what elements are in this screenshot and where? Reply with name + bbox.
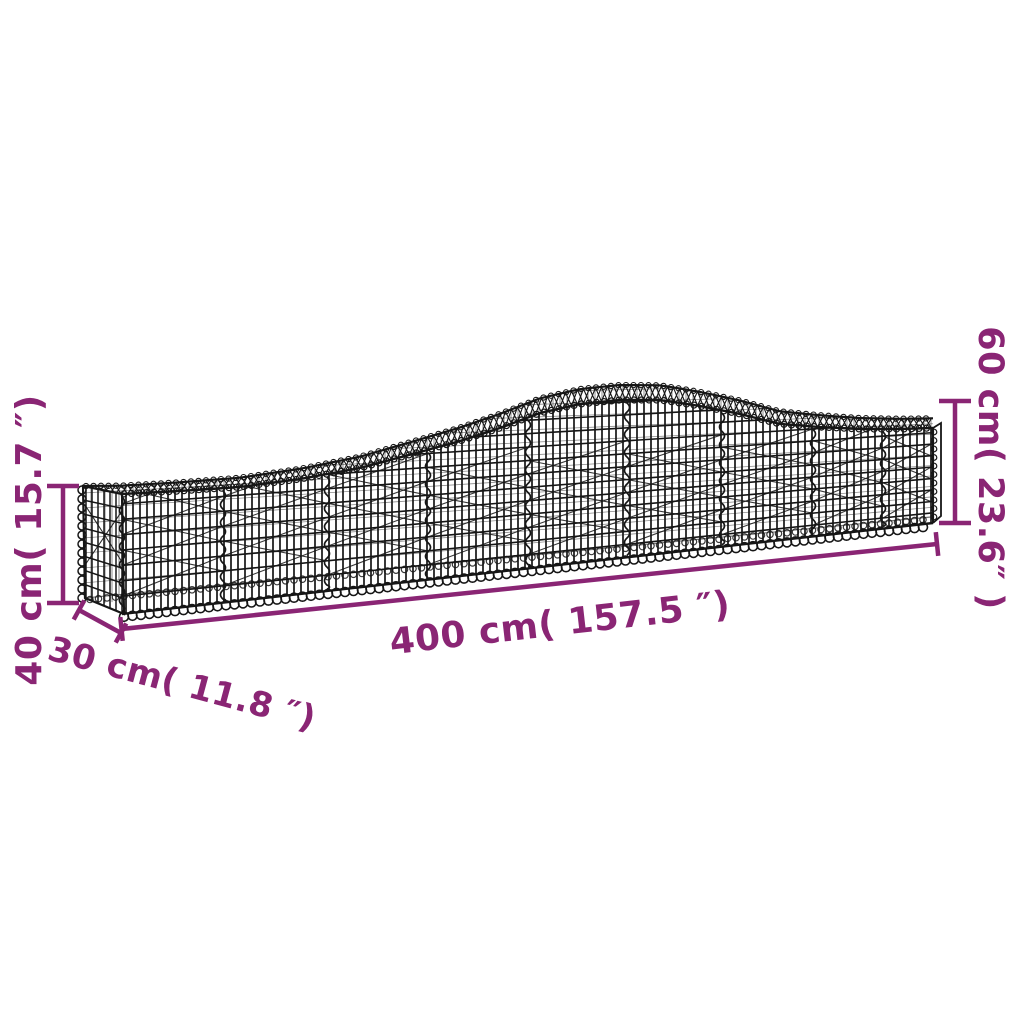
gabion-basket-drawing [0, 0, 1024, 1024]
diagram-stage: 400 cm( 157.5 ″) 30 cm( 11.8 ″) 40 cm( 1… [0, 0, 1024, 1024]
